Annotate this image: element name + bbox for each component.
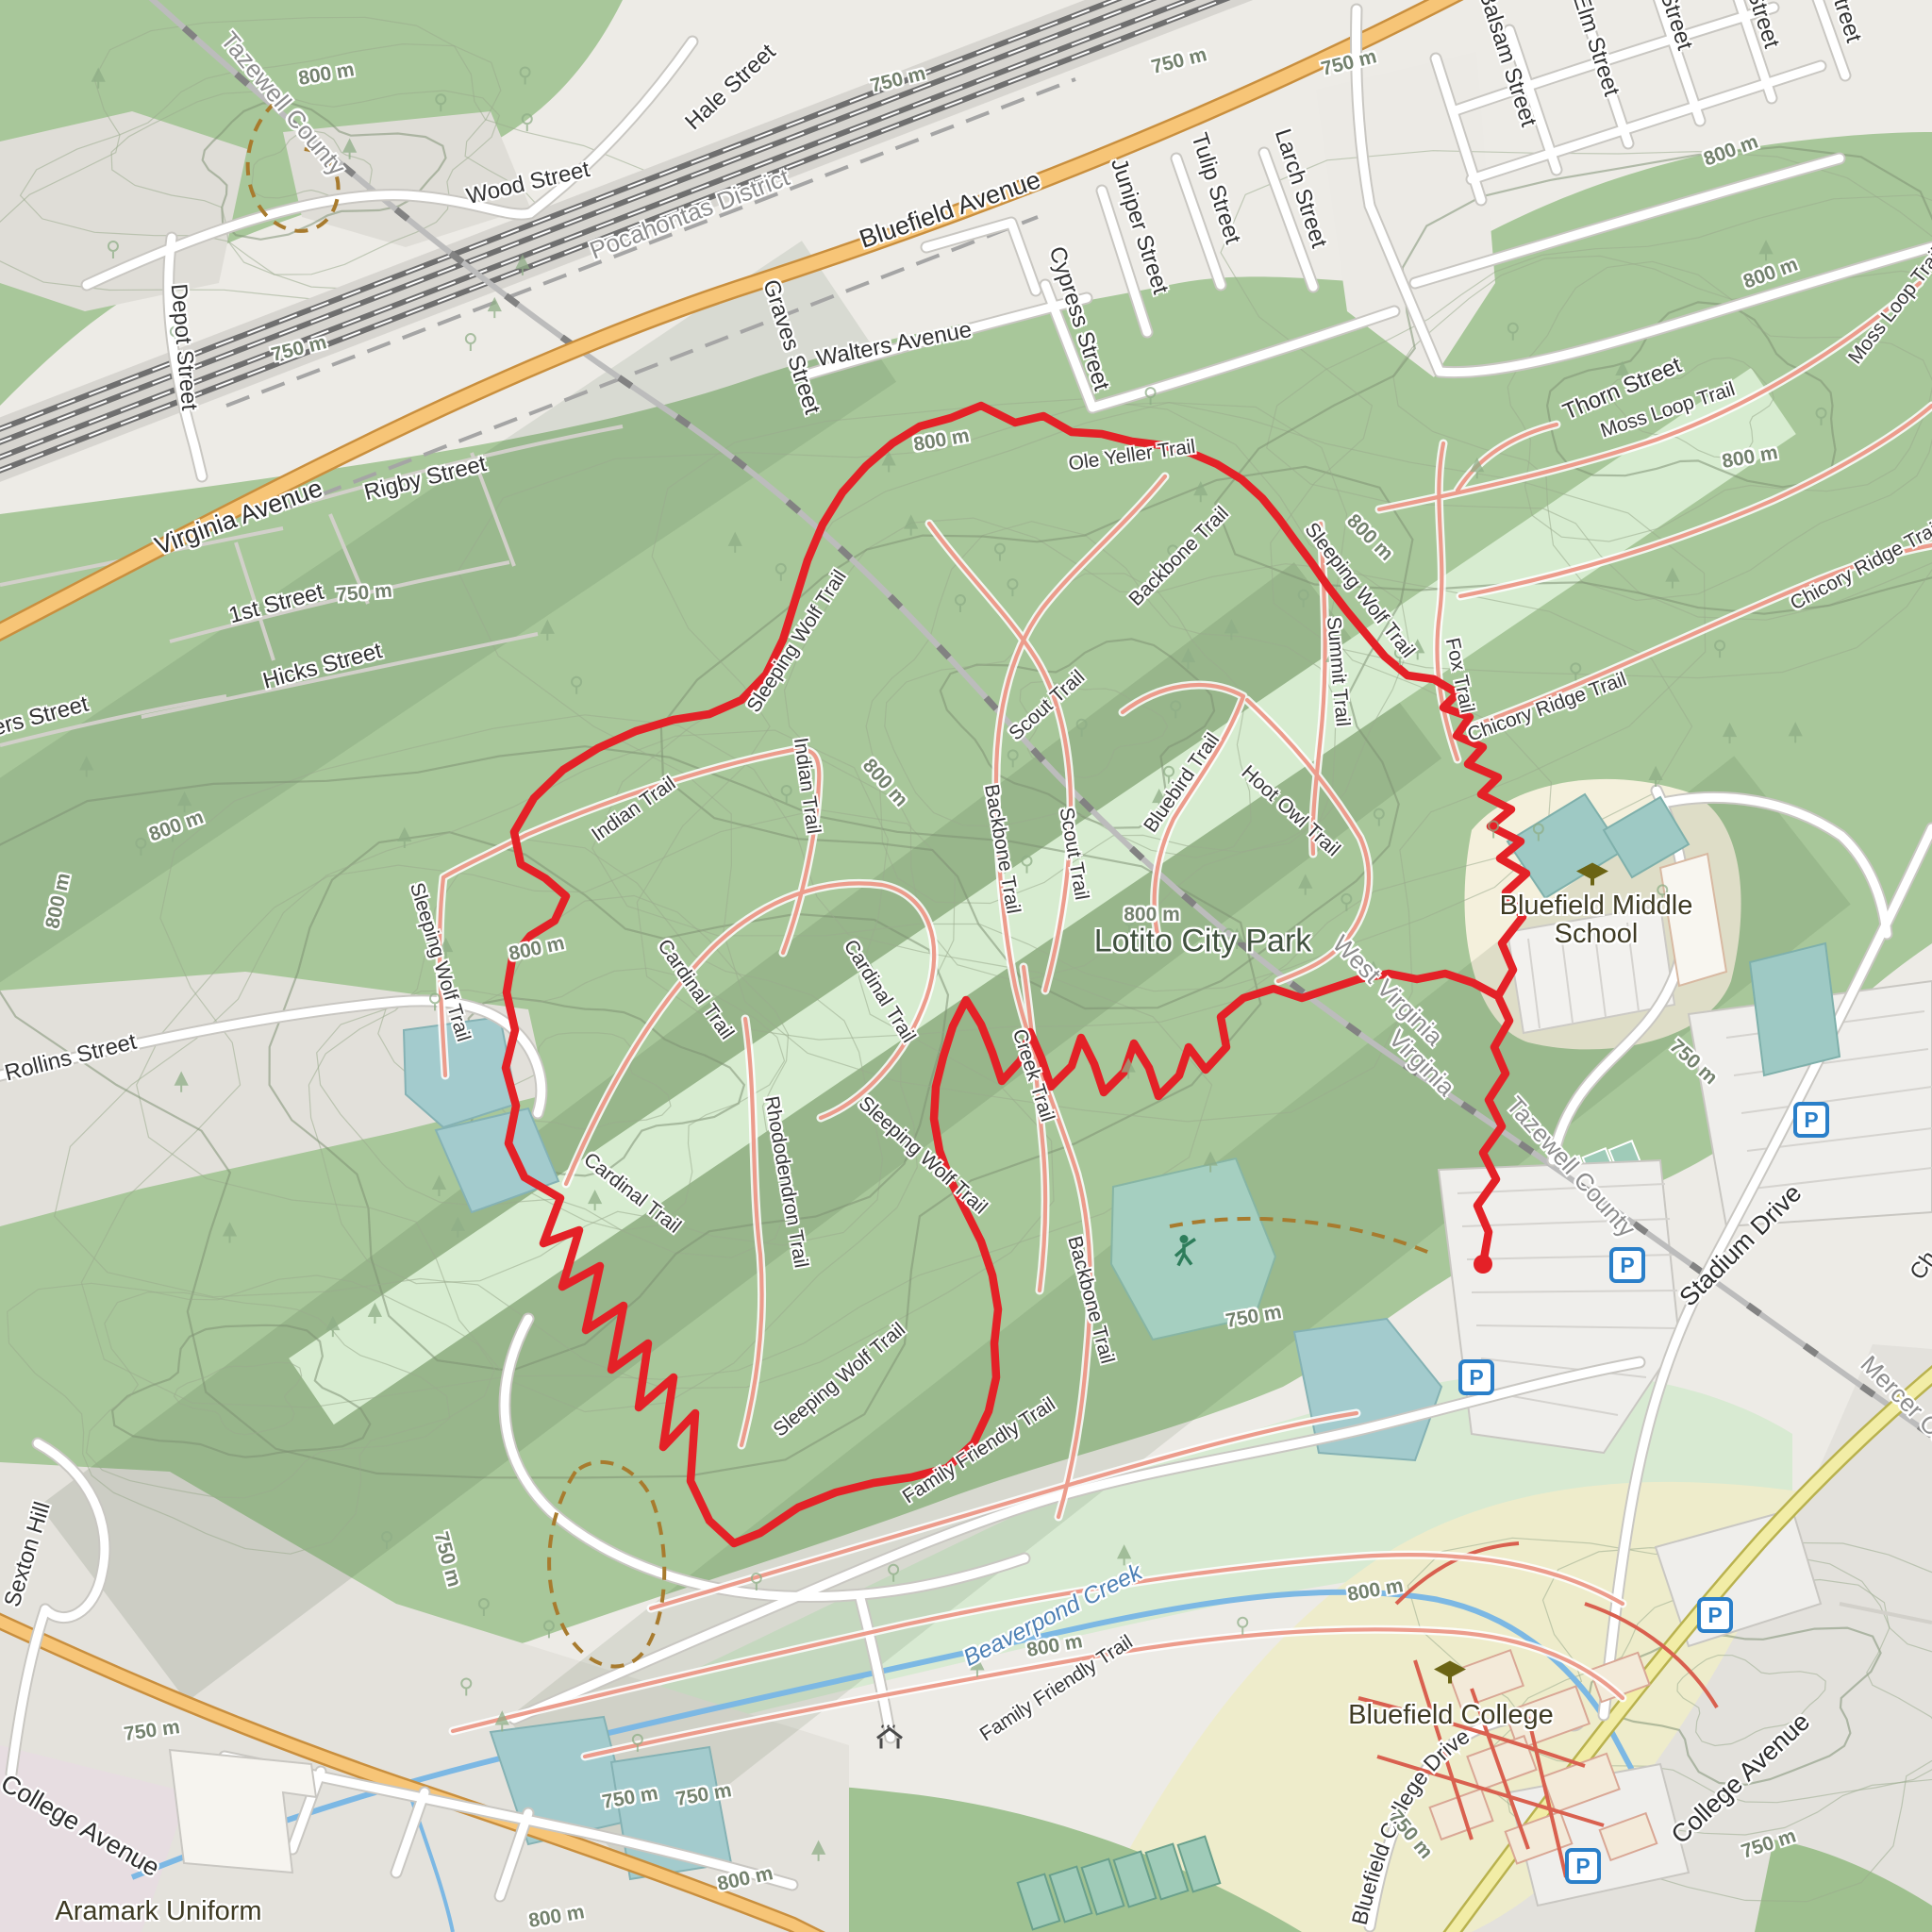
track-end-marker (1474, 1255, 1492, 1274)
basemap: Bluefield College Drive (0, 0, 1932, 1932)
map-canvas[interactable]: Bluefield College Drive Tazewell CountyT… (0, 0, 1932, 1932)
